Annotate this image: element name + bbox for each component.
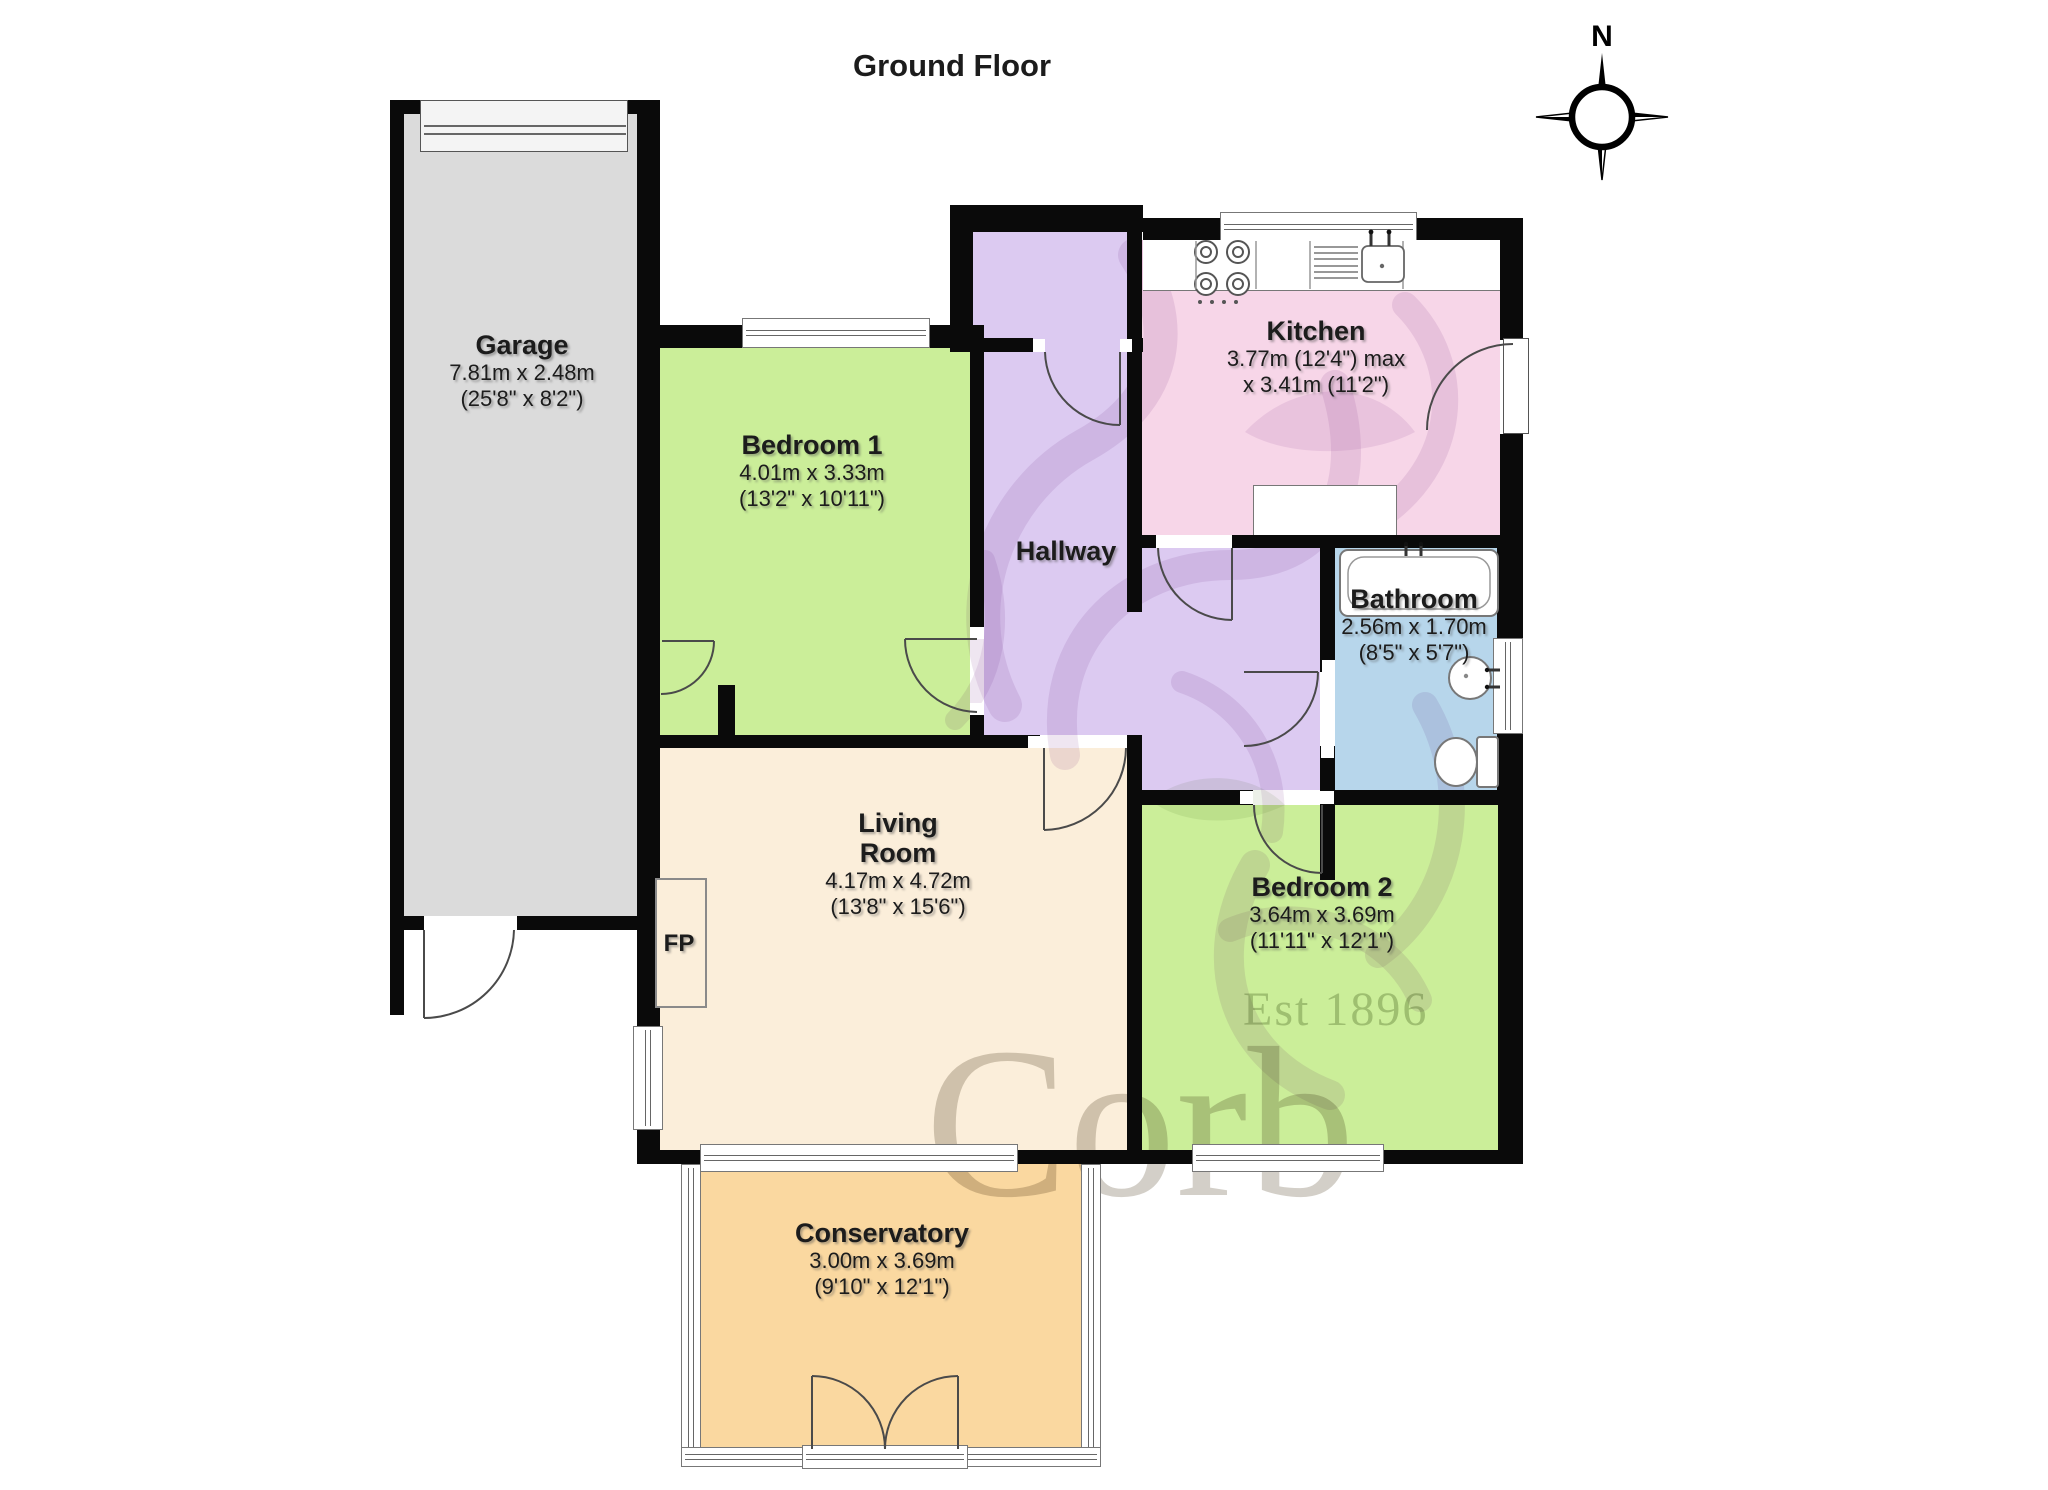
living-room-label: Living Room 4.17m x 4.72m (13'8" x 15'6"… bbox=[825, 808, 971, 920]
room-dim-metric: 3.77m (12'4") max bbox=[1227, 346, 1405, 372]
room-name: Living bbox=[825, 808, 971, 838]
room-name: Conservatory bbox=[795, 1218, 969, 1248]
room-dim-metric: 3.64m x 3.69m bbox=[1249, 902, 1395, 928]
stove-knobs bbox=[1198, 300, 1238, 304]
bedroom1-label: Bedroom 1 4.01m x 3.33m (13'2" x 10'11") bbox=[739, 430, 885, 511]
north-label: N bbox=[1591, 20, 1613, 53]
room-name: Bedroom 2 bbox=[1249, 872, 1395, 902]
room-dim-imperial: (25'8" x 8'2") bbox=[449, 386, 595, 412]
hallway-label: Hallway bbox=[1016, 536, 1117, 566]
room-dim-imperial: (8'5" x 5'7") bbox=[1341, 640, 1487, 666]
drainer-icon bbox=[1314, 247, 1358, 278]
room-name: Hallway bbox=[1016, 536, 1117, 566]
room-dim-imperial: (13'8" x 15'6") bbox=[825, 894, 971, 920]
room-dim-metric: 7.81m x 2.48m bbox=[449, 360, 595, 386]
garage-label: Garage 7.81m x 2.48m (25'8" x 8'2") bbox=[449, 330, 595, 411]
fixtures-and-doors bbox=[0, 0, 2048, 1490]
conservatory-label: Conservatory 3.00m x 3.69m (9'10" x 12'1… bbox=[795, 1218, 969, 1299]
room-name: Bathroom bbox=[1341, 584, 1487, 614]
compass-star bbox=[1536, 53, 1668, 180]
sink-icon bbox=[1362, 230, 1404, 282]
stove-icon bbox=[1195, 241, 1249, 295]
room-dim-metric: 3.00m x 3.69m bbox=[795, 1248, 969, 1274]
kitchen-label: Kitchen 3.77m (12'4") max x 3.41m (11'2"… bbox=[1227, 316, 1405, 397]
room-name: Garage bbox=[449, 330, 595, 360]
room-dim-imperial: x 3.41m (11'2") bbox=[1227, 372, 1405, 398]
garage-door-lines bbox=[424, 126, 626, 134]
toilet-icon bbox=[1435, 737, 1498, 787]
floorplan-canvas: Ground Floor Corb Est 1896 bbox=[0, 0, 2048, 1490]
room-dim-metric: 2.56m x 1.70m bbox=[1341, 614, 1487, 640]
bedroom2-label: Bedroom 2 3.64m x 3.69m (11'11" x 12'1") bbox=[1249, 872, 1395, 953]
fireplace-label: FP bbox=[664, 930, 695, 958]
room-dim-metric: 4.17m x 4.72m bbox=[825, 868, 971, 894]
room-dim-imperial: (11'11" x 12'1") bbox=[1249, 928, 1395, 954]
room-name: Room bbox=[825, 838, 971, 868]
room-name: Kitchen bbox=[1227, 316, 1405, 346]
bathroom-label: Bathroom 2.56m x 1.70m (8'5" x 5'7") bbox=[1341, 584, 1487, 665]
room-dim-imperial: (13'2" x 10'11") bbox=[739, 486, 885, 512]
room-name: Bedroom 1 bbox=[739, 430, 885, 460]
room-dim-metric: 4.01m x 3.33m bbox=[739, 460, 885, 486]
compass-rose: N bbox=[1520, 8, 1690, 193]
room-dim-imperial: (9'10" x 12'1") bbox=[795, 1274, 969, 1300]
